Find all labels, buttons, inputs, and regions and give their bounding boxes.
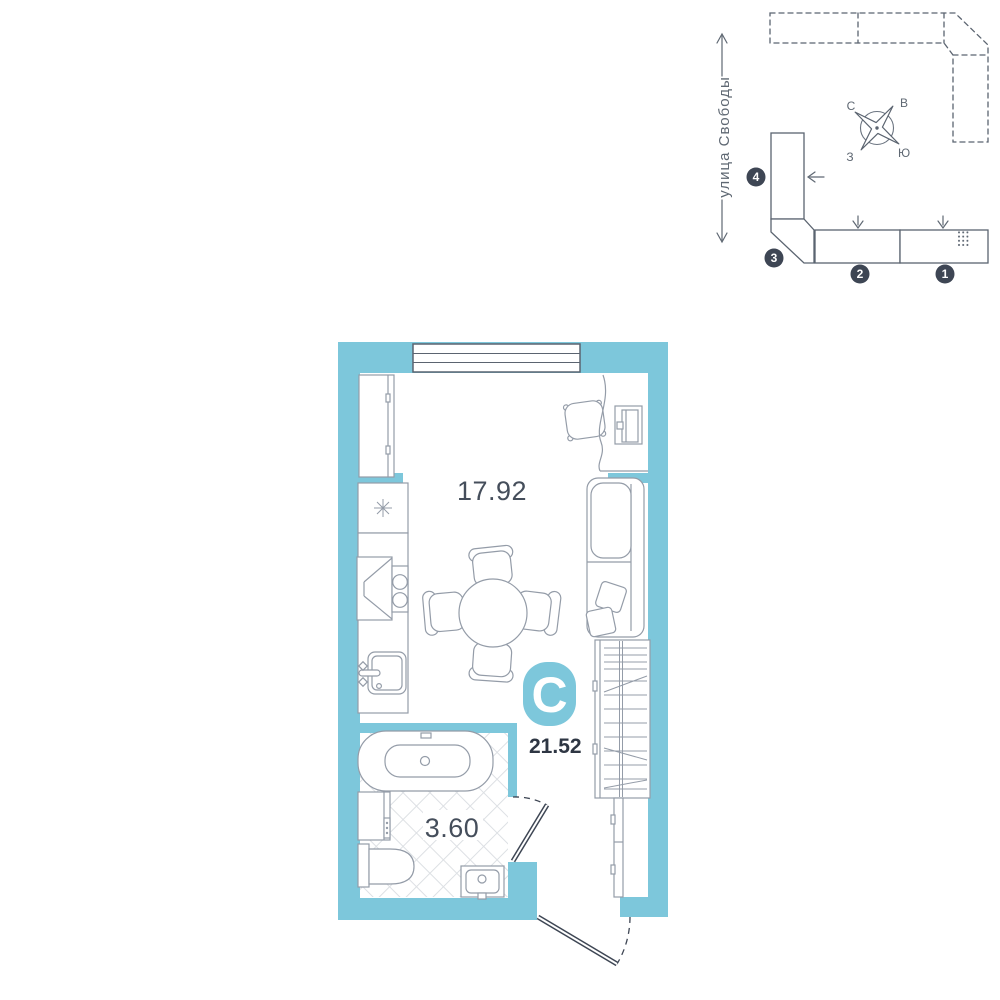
arrow-down-icon [853,216,863,228]
site-plan: 1 2 3 4 С В З Ю [716,13,988,284]
wardrobe [593,640,650,798]
street: улица Свободы [716,34,733,242]
building-4 [771,133,804,219]
hallway-cabinet [611,798,623,897]
burner [393,593,408,608]
building-entrance-arrows [808,172,948,228]
apartment-location-marker [957,230,970,246]
stove [357,557,408,620]
bathroom-wall-right-upper [508,733,517,797]
compass-west-label: З [846,150,853,164]
bathroom-door [513,797,547,861]
pillow [586,607,617,638]
sofa [586,478,644,637]
bathroom-wall-right-lower [508,862,537,898]
faucet [359,670,380,676]
entrance-door [538,917,630,964]
apartment-type-badge: С [523,662,576,726]
bathroom-sink [461,866,504,899]
apartment-plan: 17.92 3.60 С 21.52 [338,342,668,964]
burner [393,575,408,590]
floorplan-page: 1 2 3 4 С В З Ю [0,0,1000,1000]
dining-chair-bottom [469,642,516,683]
badge-3-number: 3 [771,251,778,265]
plan-svg: 1 2 3 4 С В З Ю [0,0,1000,1000]
room-area-label: 17.92 [457,476,527,506]
bathroom-area-label: 3.60 [425,813,480,843]
badge-building-2: 2 [851,265,870,284]
arrow-left-icon [808,172,824,182]
compass-east-label: В [900,96,908,110]
compass-north-label: С [847,99,856,113]
badge-1-number: 1 [942,267,949,281]
badge-building-4: 4 [747,168,766,187]
cabinet-tall [359,375,394,477]
site-buildings [771,133,988,263]
monitor [622,410,638,442]
badge-building-1: 1 [936,265,955,284]
total-area-label: 21.52 [529,735,582,758]
compass-rose: С В З Ю [846,96,910,164]
badge-4-number: 4 [753,170,760,184]
compass-south-label: Ю [898,146,910,160]
street-arrow-down-icon [717,200,727,242]
building-1 [900,230,988,263]
apartment-type-letter: С [531,667,567,723]
fridge [358,483,408,533]
window [413,344,580,372]
washing-machine [358,792,390,840]
arrow-down-icon [938,216,948,228]
street-arrow-up-icon [717,34,727,76]
building-2 [815,230,900,263]
badge-building-3: 3 [765,249,784,268]
dining-table [459,579,527,647]
street-name-label: улица Свободы [716,76,733,198]
bathtub [358,731,493,791]
desk [615,406,642,444]
badge-2-number: 2 [857,267,864,281]
